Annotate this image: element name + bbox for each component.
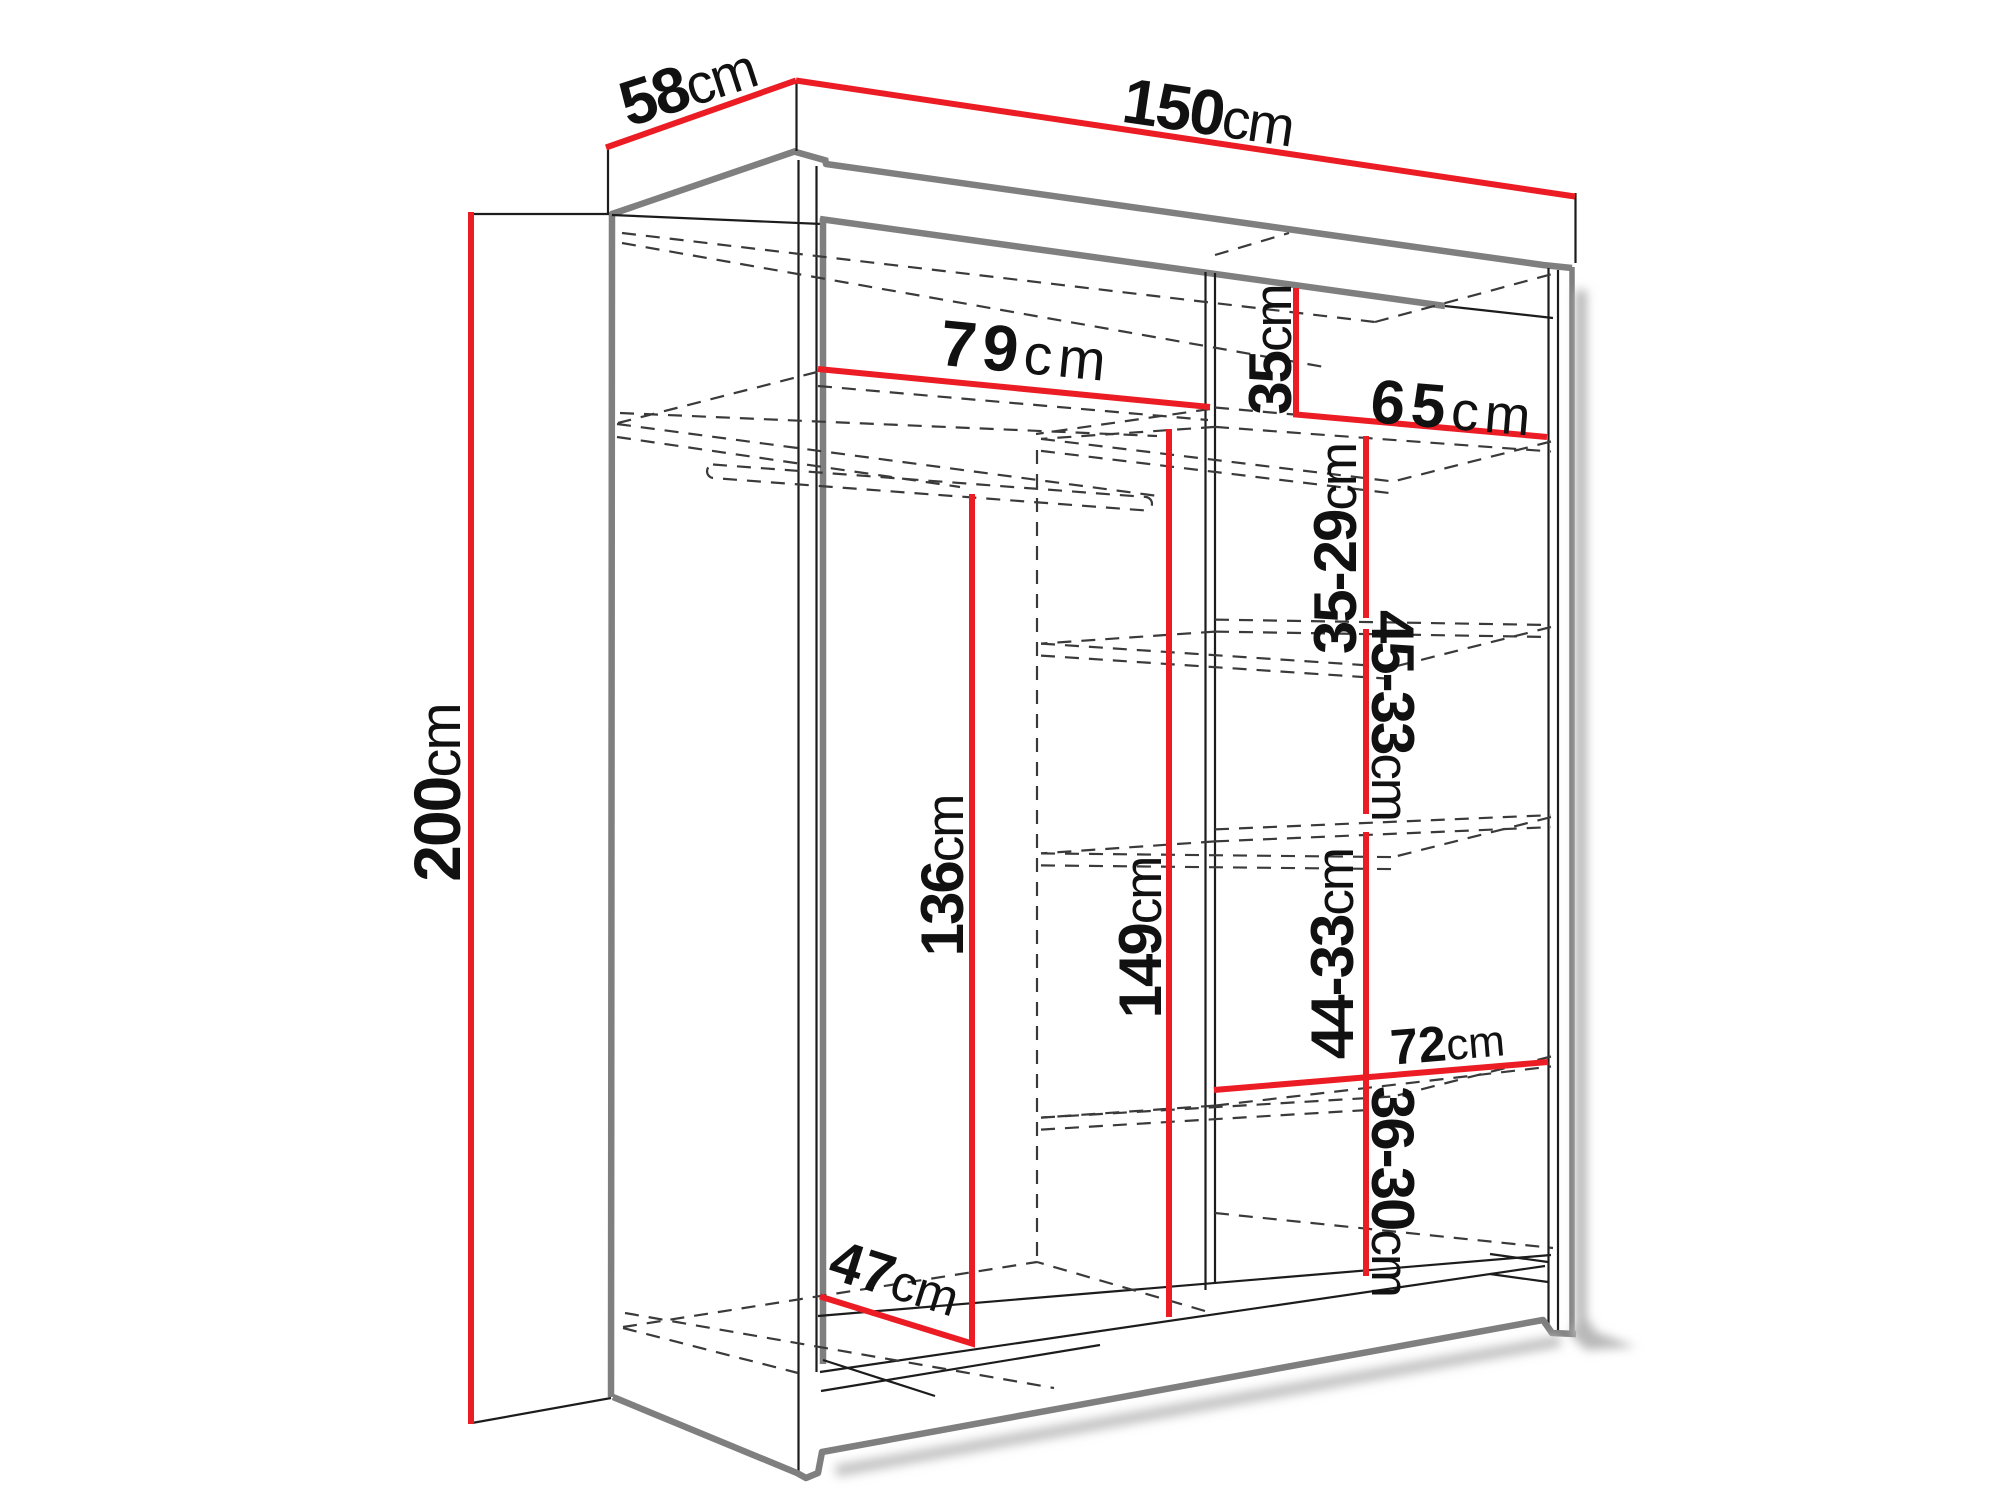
svg-text:136cm: 136cm	[909, 796, 976, 957]
svg-text:149cm: 149cm	[1107, 858, 1174, 1019]
svg-text:45-33cm: 45-33cm	[1359, 610, 1426, 820]
svg-text:35cm: 35cm	[1237, 285, 1304, 414]
svg-text:72cm: 72cm	[1388, 1010, 1507, 1075]
svg-text:200cm: 200cm	[400, 704, 474, 881]
svg-text:44-33cm: 44-33cm	[1299, 849, 1366, 1059]
svg-text:35-29cm: 35-29cm	[1302, 444, 1369, 654]
svg-text:36-30cm: 36-30cm	[1359, 1086, 1426, 1296]
